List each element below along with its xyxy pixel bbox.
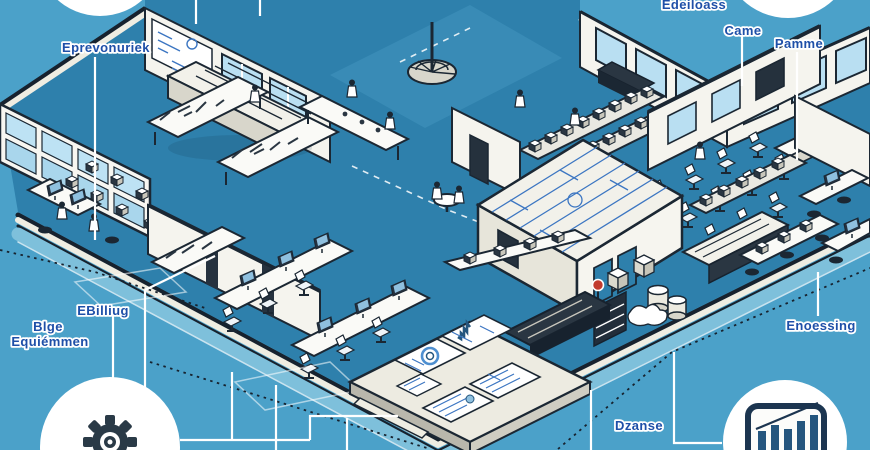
label-top-right-mid: Came (724, 23, 761, 38)
label-top-left: Eprevonuriek (62, 40, 150, 55)
bar-chart-icon (748, 403, 824, 450)
label-right-lower: Enoessing (786, 318, 855, 333)
illustration-stage: Eprevonuriek Edeiloass Came Pamme EBilli… (0, 0, 870, 450)
door (470, 135, 488, 184)
label-top-right-lower: Pamme (775, 36, 823, 51)
tank-cylinder (668, 296, 686, 320)
label-left-upper: EBilliug (77, 303, 129, 318)
label-top-right-upper: Edeiloass (662, 0, 726, 12)
label-left-lower-2: Equiémmen (11, 334, 88, 349)
crate (634, 255, 654, 277)
office-chair (38, 227, 52, 234)
office-chair (105, 237, 119, 244)
label-left-lower-1: Blge (33, 319, 63, 334)
label-bottom-center: Dzanse (615, 418, 663, 433)
facility-illustration: Eprevonuriek Edeiloass Came Pamme EBilli… (0, 0, 870, 450)
crate (608, 268, 628, 290)
